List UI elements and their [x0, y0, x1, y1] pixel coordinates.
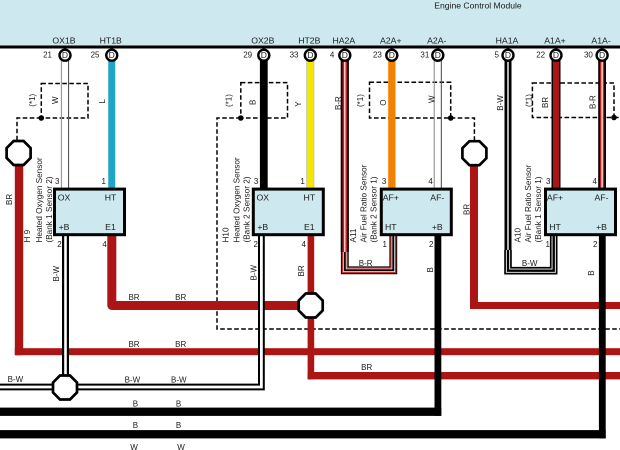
svg-text:(Bank 1 Sensor 2): (Bank 1 Sensor 2) [45, 176, 54, 242]
svg-text:BR: BR [297, 265, 306, 276]
svg-text:AF-: AF- [595, 192, 609, 202]
svg-text:(*1): (*1) [356, 94, 365, 107]
svg-text:21: 21 [43, 51, 52, 60]
svg-text:(Bank 2 Sensor 2): (Bank 2 Sensor 2) [242, 176, 251, 242]
svg-text:D: D [109, 50, 115, 60]
svg-text:Heated Oxygen Sensor: Heated Oxygen Sensor [35, 157, 44, 242]
svg-text:D: D [62, 50, 68, 60]
svg-text:1: 1 [383, 240, 388, 249]
svg-text:L: L [98, 99, 107, 104]
svg-text:Engine Control Module: Engine Control Module [434, 1, 522, 11]
svg-text:A1A-: A1A- [591, 35, 610, 45]
svg-text:HT2B: HT2B [298, 35, 320, 45]
svg-text:2: 2 [429, 240, 434, 249]
svg-text:E1: E1 [105, 222, 116, 232]
svg-text:1: 1 [102, 177, 107, 186]
svg-text:Heated Oxygen Sensor: Heated Oxygen Sensor [232, 157, 241, 242]
svg-text:B: B [133, 421, 138, 430]
svg-text:D: D [307, 50, 313, 60]
svg-text:BR: BR [128, 340, 139, 349]
svg-text:W: W [177, 443, 185, 450]
svg-text:(*1): (*1) [28, 93, 37, 106]
svg-text:BR: BR [5, 194, 14, 205]
svg-text:AF+: AF+ [383, 192, 399, 202]
svg-text:3: 3 [55, 177, 60, 186]
svg-text:2: 2 [254, 240, 259, 249]
svg-text:25: 25 [91, 51, 100, 60]
svg-text:4: 4 [593, 177, 598, 186]
svg-text:AF+: AF+ [547, 192, 563, 202]
svg-text:(*1): (*1) [525, 94, 534, 107]
svg-text:D: D [599, 50, 605, 60]
svg-text:BR: BR [361, 363, 372, 372]
svg-text:H 9: H 9 [23, 229, 32, 242]
svg-text:(*1): (*1) [225, 94, 234, 107]
svg-text:A1A+: A1A+ [544, 35, 566, 45]
svg-text:HT: HT [304, 192, 316, 202]
svg-text:HT1B: HT1B [100, 35, 122, 45]
svg-text:Air Fuel Ratio Sensor: Air Fuel Ratio Sensor [359, 164, 368, 242]
svg-text:1: 1 [546, 240, 551, 249]
svg-text:B: B [176, 421, 181, 430]
svg-text:B: B [426, 267, 435, 272]
svg-text:+B: +B [59, 222, 70, 232]
svg-text:HT: HT [549, 222, 561, 232]
svg-text:+B: +B [257, 222, 268, 232]
svg-text:B-W: B-W [250, 265, 259, 281]
svg-text:D: D [553, 50, 559, 60]
svg-text:(Bank 1 Sensor 1): (Bank 1 Sensor 1) [534, 176, 543, 242]
svg-text:B-W: B-W [496, 95, 505, 111]
svg-text:3: 3 [546, 177, 551, 186]
svg-text:(Bank 2 Sensor 1): (Bank 2 Sensor 1) [369, 176, 378, 242]
svg-text:29: 29 [243, 51, 252, 60]
svg-text:4: 4 [102, 240, 107, 249]
svg-text:B-W: B-W [52, 266, 61, 282]
svg-text:2: 2 [593, 240, 598, 249]
svg-text:BR: BR [175, 340, 186, 349]
svg-text:HT: HT [385, 222, 397, 232]
svg-text:B-W: B-W [8, 375, 24, 384]
svg-text:31: 31 [420, 51, 429, 60]
svg-text:BR: BR [462, 204, 471, 215]
svg-text:+B: +B [432, 222, 443, 232]
svg-text:30: 30 [584, 51, 593, 60]
svg-text:AF-: AF- [430, 192, 444, 202]
svg-text:E1: E1 [304, 222, 315, 232]
svg-text:B: B [587, 270, 596, 275]
svg-text:+B: +B [596, 222, 607, 232]
svg-text:A2A+: A2A+ [380, 35, 402, 45]
svg-text:Air Fuel Ratio Sensor: Air Fuel Ratio Sensor [524, 164, 533, 242]
svg-text:3: 3 [254, 177, 259, 186]
svg-text:A10: A10 [514, 227, 523, 242]
svg-text:5: 5 [495, 51, 500, 60]
svg-text:B: B [249, 100, 258, 105]
svg-text:W: W [427, 95, 436, 103]
svg-text:BR: BR [175, 293, 186, 302]
svg-text:4: 4 [302, 240, 307, 249]
svg-text:B-W: B-W [125, 376, 141, 385]
svg-text:A11: A11 [349, 228, 358, 242]
svg-text:OX1B: OX1B [52, 35, 75, 45]
svg-text:D: D [505, 50, 511, 60]
svg-text:A2A-: A2A- [427, 35, 446, 45]
svg-text:HA2A: HA2A [332, 35, 355, 45]
svg-text:O: O [379, 99, 388, 105]
svg-text:23: 23 [373, 51, 382, 60]
svg-text:B-W: B-W [522, 259, 538, 268]
svg-text:3: 3 [382, 177, 387, 186]
svg-text:D: D [342, 50, 348, 60]
svg-text:BR: BR [541, 97, 550, 108]
svg-text:D: D [389, 50, 395, 60]
svg-text:H10: H10 [222, 227, 231, 242]
svg-text:W: W [51, 96, 60, 104]
svg-text:4: 4 [428, 177, 433, 186]
svg-text:B-W: B-W [171, 376, 187, 385]
svg-text:4: 4 [330, 51, 335, 60]
svg-text:2: 2 [57, 240, 62, 249]
svg-text:OX: OX [58, 192, 71, 202]
svg-text:B-R: B-R [334, 96, 343, 110]
svg-text:Y: Y [294, 101, 303, 107]
svg-text:OX2B: OX2B [251, 35, 274, 45]
svg-text:33: 33 [290, 51, 299, 60]
svg-text:D: D [261, 50, 267, 60]
svg-text:OX: OX [257, 192, 270, 202]
svg-text:B-R: B-R [589, 95, 598, 109]
svg-text:22: 22 [536, 51, 545, 60]
svg-text:1: 1 [300, 177, 305, 186]
svg-text:B: B [133, 400, 138, 409]
svg-text:HT: HT [105, 192, 117, 202]
svg-text:D: D [435, 50, 441, 60]
svg-text:BR: BR [128, 293, 139, 302]
svg-text:W: W [130, 443, 138, 450]
svg-text:HA1A: HA1A [496, 35, 519, 45]
svg-text:B-R: B-R [359, 259, 373, 268]
svg-text:B: B [176, 400, 181, 409]
